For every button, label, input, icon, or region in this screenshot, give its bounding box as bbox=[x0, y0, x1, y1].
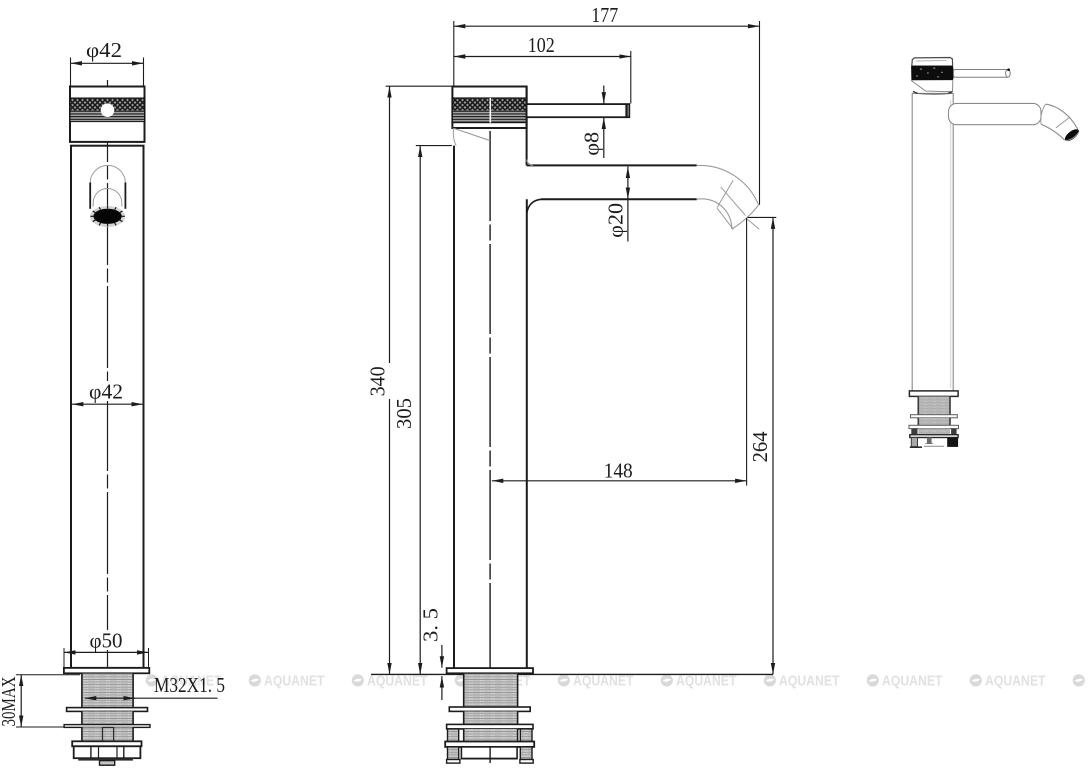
svg-text:3. 5: 3. 5 bbox=[419, 608, 443, 642]
svg-text:148: 148 bbox=[604, 459, 633, 483]
svg-text:M32X1. 5: M32X1. 5 bbox=[154, 673, 225, 697]
svg-text:φ20: φ20 bbox=[603, 203, 627, 238]
svg-text:305: 305 bbox=[392, 398, 416, 429]
svg-text:177: 177 bbox=[591, 3, 618, 27]
svg-text:102: 102 bbox=[528, 33, 555, 57]
svg-text:264: 264 bbox=[748, 431, 772, 462]
svg-text:φ42: φ42 bbox=[89, 380, 123, 404]
svg-text:φ8: φ8 bbox=[580, 132, 604, 156]
svg-text:φ50: φ50 bbox=[90, 629, 123, 653]
svg-text:340: 340 bbox=[365, 366, 389, 396]
svg-text:φ42: φ42 bbox=[86, 38, 122, 62]
svg-text:30MAX: 30MAX bbox=[0, 676, 20, 726]
